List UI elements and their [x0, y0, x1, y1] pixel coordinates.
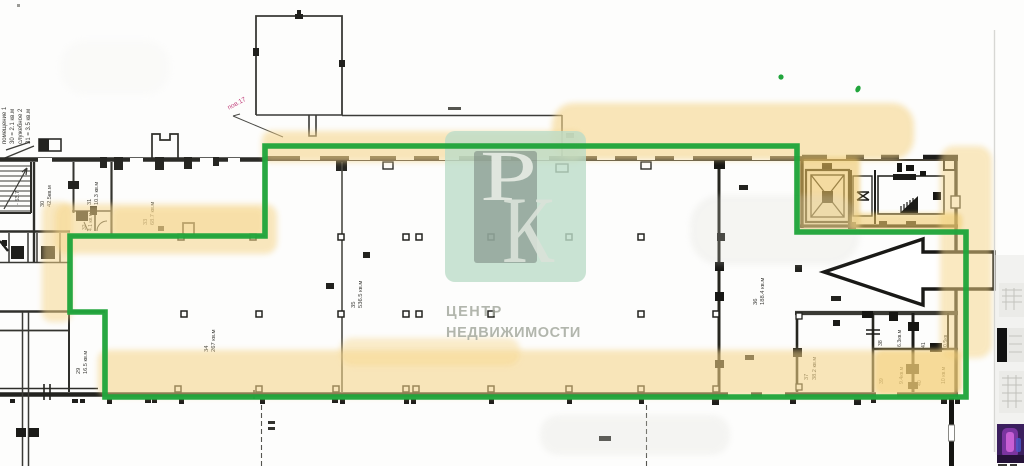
svg-text:267 кв.м: 267 кв.м: [211, 329, 217, 352]
svg-text:36: 36: [753, 299, 759, 305]
svg-text:16.5 кв.м: 16.5 кв.м: [83, 351, 89, 374]
svg-text:служебное 2: служебное 2: [18, 108, 24, 144]
svg-text:К: К: [502, 177, 555, 283]
svg-text:41: 41: [921, 342, 927, 348]
svg-text:пов.17: пов.17: [227, 96, 248, 112]
svg-text:6.3кв.м: 6.3кв.м: [897, 329, 903, 347]
svg-text:29: 29: [76, 368, 82, 374]
svg-text:НЕДВИЖИМОСТИ: НЕДВИЖИМОСТИ: [446, 325, 581, 341]
svg-text:536.5 кв.м: 536.5 кв.м: [358, 281, 364, 308]
svg-text:10.3 кв.м: 10.3 кв.м: [94, 182, 100, 205]
svg-text:38: 38: [878, 340, 884, 346]
svg-text:30 = 2.1 кв.м: 30 = 2.1 кв.м: [10, 109, 16, 144]
svg-text:помещение 1: помещение 1: [2, 106, 8, 144]
svg-text:31 = 3.5 кв.м: 31 = 3.5 кв.м: [26, 109, 32, 144]
svg-text:- 53.7: - 53.7: [15, 191, 21, 205]
svg-text:188.4 кв.м: 188.4 кв.м: [760, 278, 766, 305]
svg-text:ЦЕНТР: ЦЕНТР: [446, 304, 503, 320]
svg-text:35: 35: [351, 302, 357, 308]
